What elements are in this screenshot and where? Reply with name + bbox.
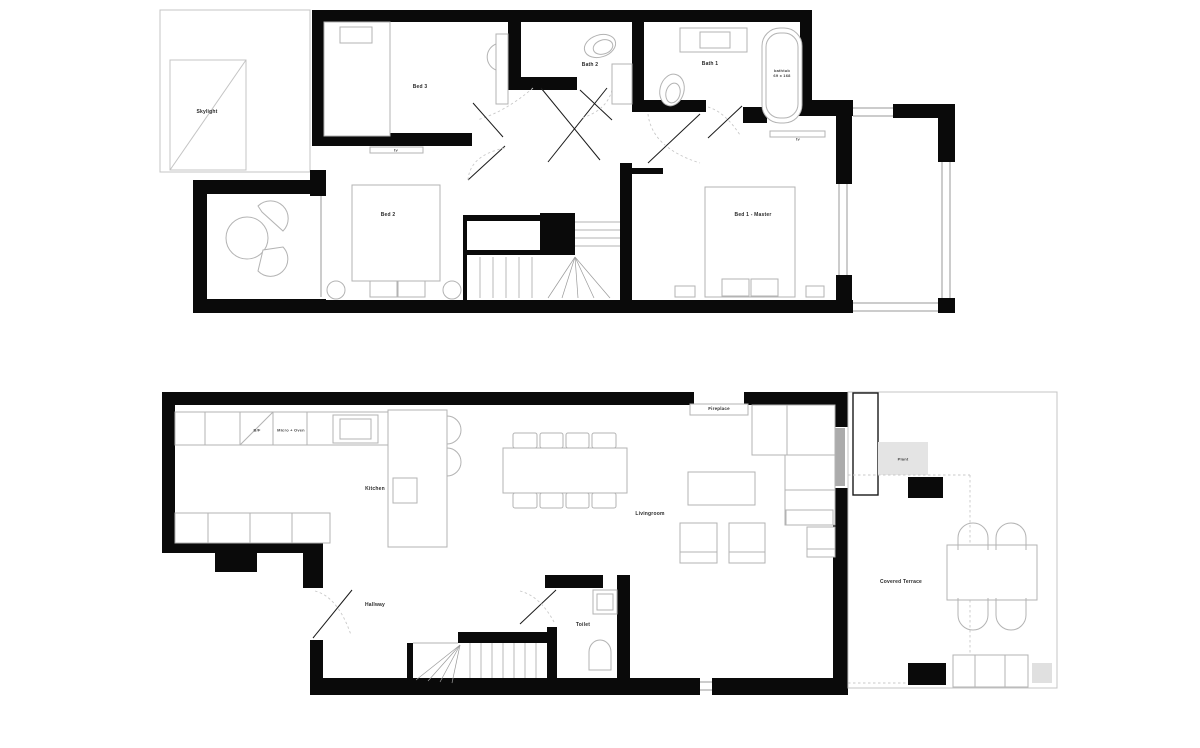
kitchen-furniture xyxy=(175,410,461,547)
label-kitchen: Kitchen xyxy=(365,486,385,492)
label-covered-terrace: Covered Terrace xyxy=(880,579,922,585)
bathtub-size: 69 x 168 xyxy=(773,73,790,78)
label-micro-oven: Micro + Oven xyxy=(277,428,305,433)
label-toilet: Toilet xyxy=(576,622,590,628)
label-fireplace: Fireplace xyxy=(708,406,730,412)
label-bf: B/F xyxy=(253,428,260,433)
label-bed1-master: Bed 1 - Master xyxy=(735,212,772,218)
upper-windows xyxy=(839,108,950,311)
label-tv-master: tv xyxy=(796,137,800,142)
label-bathtub: bathtub 69 x 168 xyxy=(773,68,790,78)
ground-stairs xyxy=(413,643,536,683)
ground-floor-plan xyxy=(162,392,1057,695)
label-livingroom: Livingroom xyxy=(635,511,664,517)
label-tv-bed2: tv xyxy=(394,148,398,153)
label-bath2: Bath 2 xyxy=(582,62,598,68)
ground-doors xyxy=(313,590,556,638)
label-hallway: Hallway xyxy=(365,602,385,608)
balcony xyxy=(193,170,326,313)
terrace xyxy=(848,392,1057,688)
upper-walls xyxy=(193,10,955,313)
dining-set xyxy=(503,433,627,508)
skylight-area xyxy=(160,10,310,172)
floor-plan-canvas: Skylight Bed 3 Bath 2 Bath 1 bathtub 69 … xyxy=(0,0,1200,748)
floor-plan-drawing xyxy=(0,0,1200,748)
toilet-fixtures xyxy=(589,590,617,670)
upper-floor-plan xyxy=(160,10,955,313)
label-plant: Plant xyxy=(898,457,909,462)
label-skylight: Skylight xyxy=(196,109,217,115)
living-furniture xyxy=(680,405,835,563)
label-bath1: Bath 1 xyxy=(702,61,718,67)
label-bed2: Bed 2 xyxy=(381,212,396,218)
label-bed3: Bed 3 xyxy=(413,84,428,90)
